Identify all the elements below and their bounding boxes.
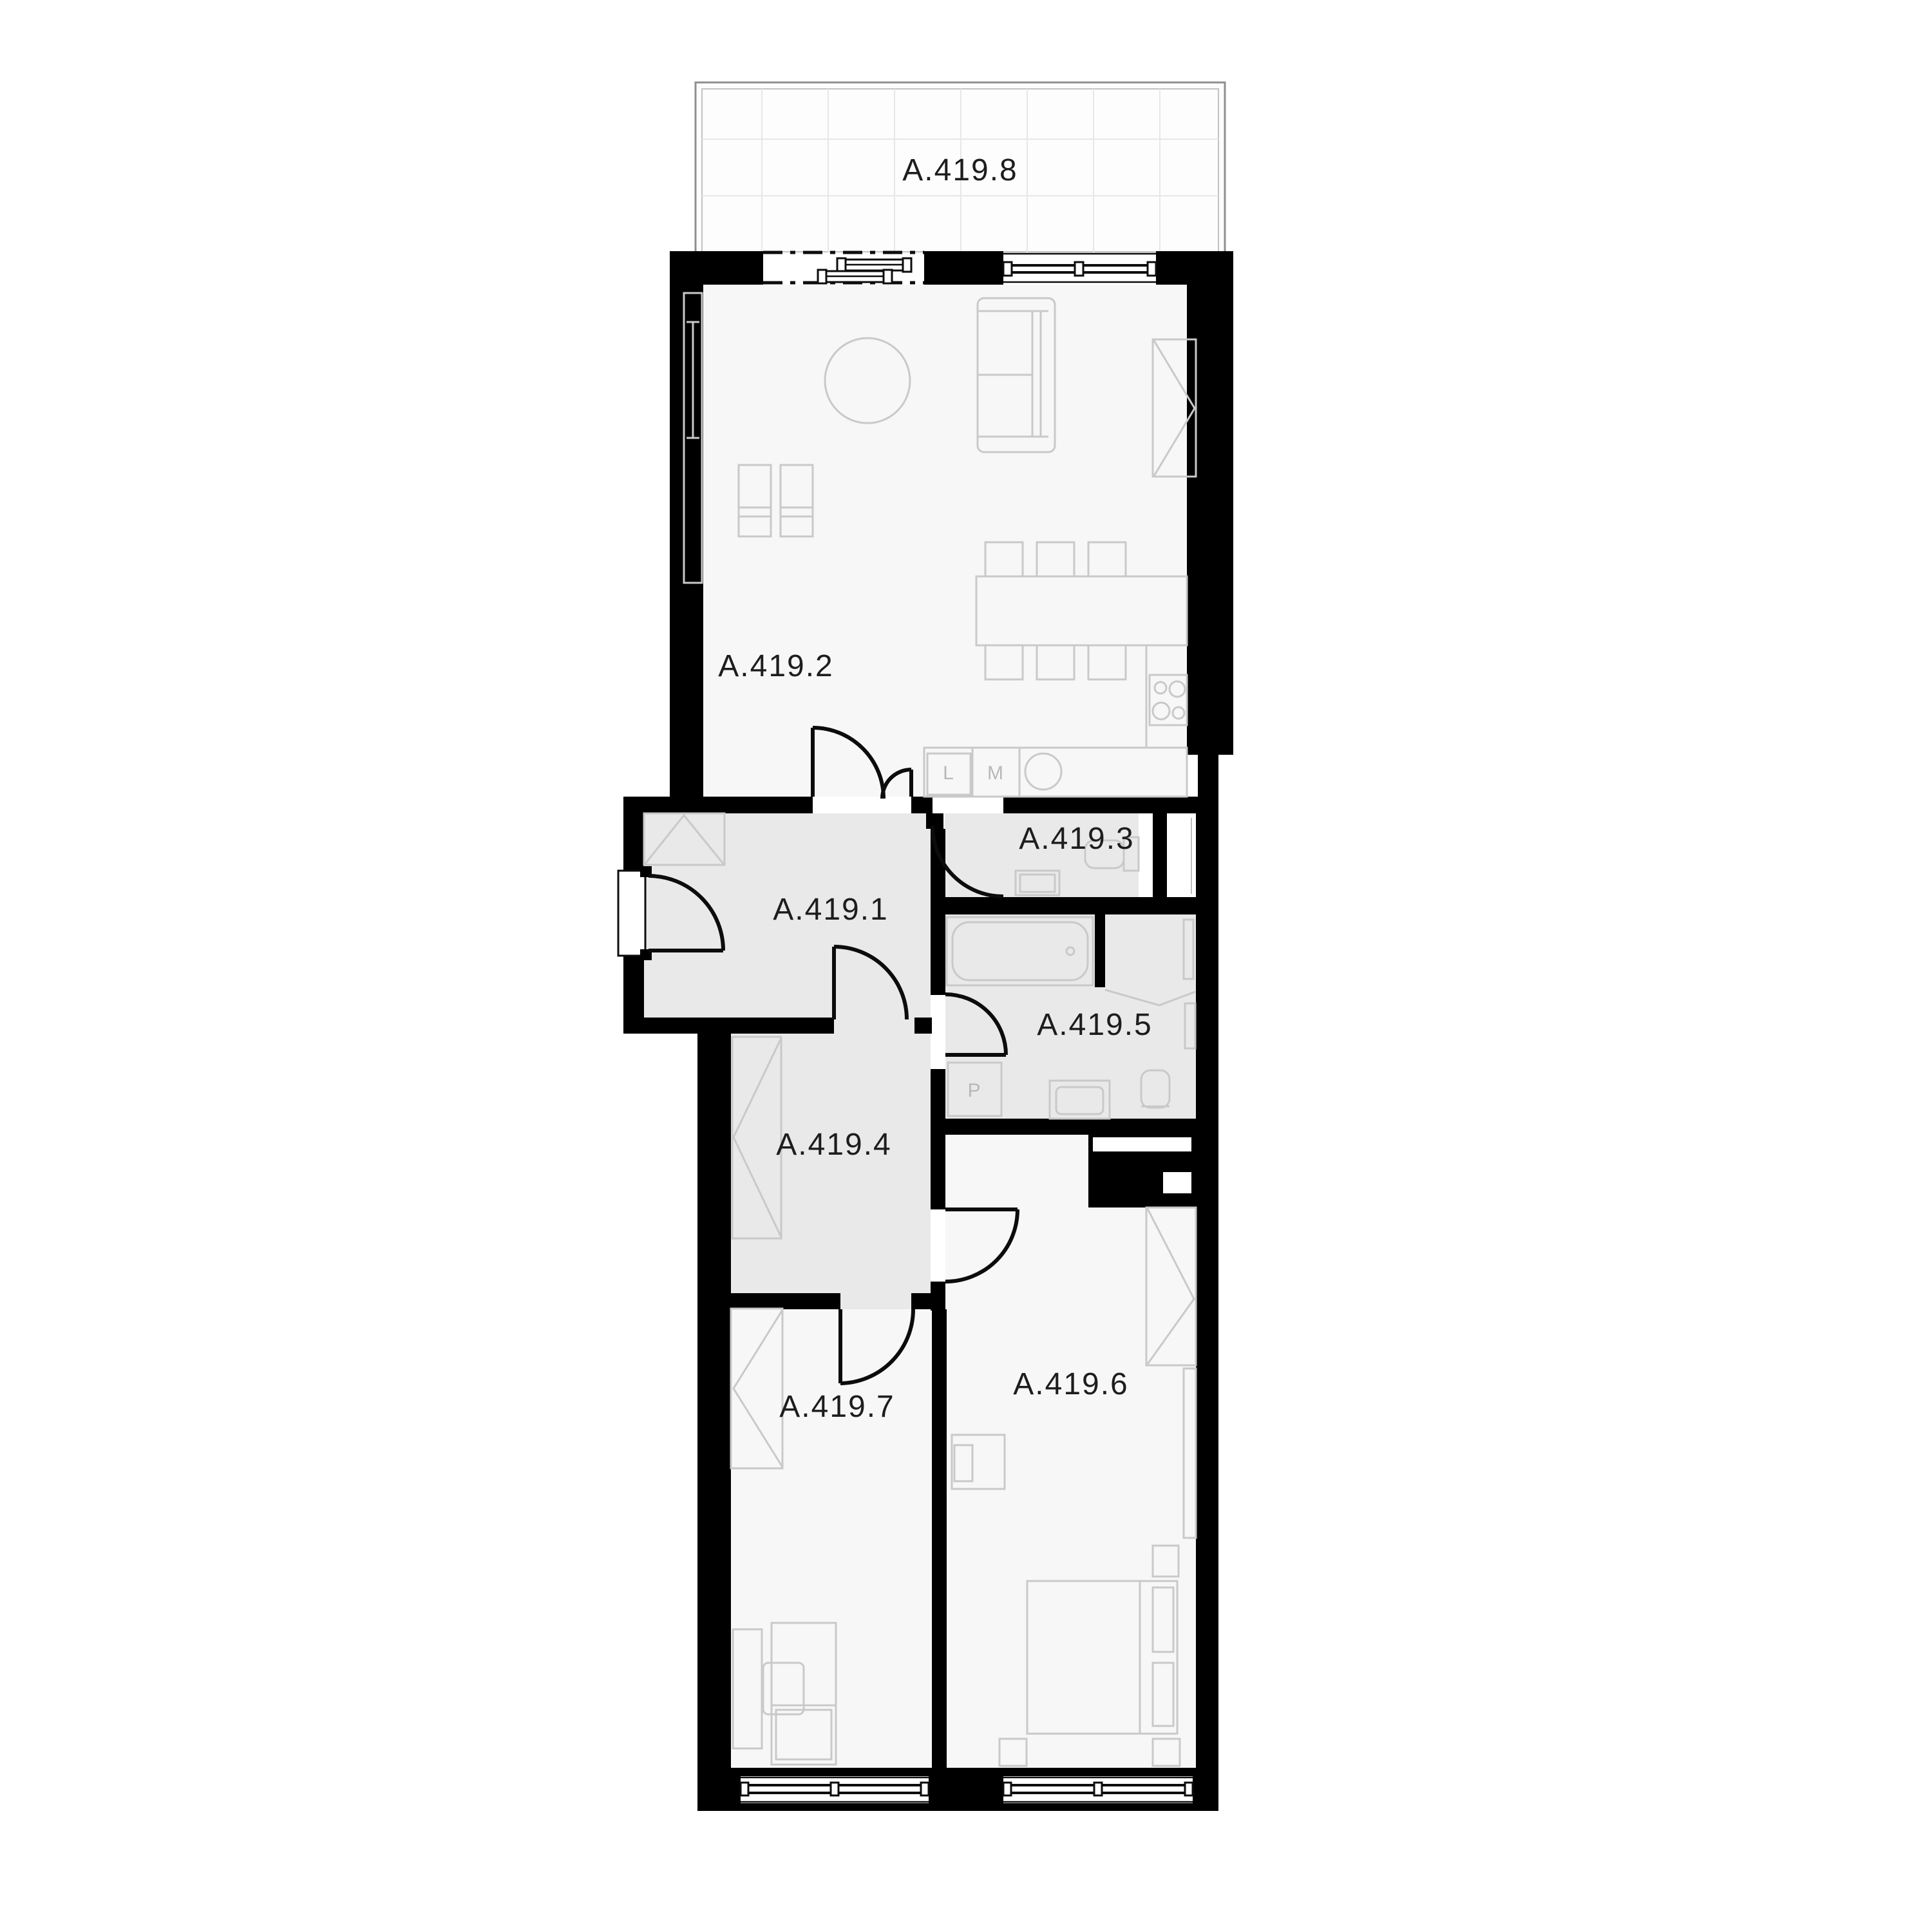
room-label-corridor: A.419.4 [776,1128,891,1162]
floor-corridor [731,1034,931,1309]
floor-bedroom-1 [945,1207,1196,1768]
room-label-bedroom-2: A.419.7 [779,1390,895,1424]
room-label-wc: A.419.3 [1019,822,1134,856]
appliance-label-m: M [987,762,1004,784]
living-room-window [1003,252,1156,283]
bedroom-2-window [741,1776,929,1803]
room-label-bathroom: A.419.5 [1037,1008,1152,1042]
room-label-living-kitchen: A.419.2 [718,649,833,683]
room-label-bedroom-1: A.419.6 [1013,1367,1128,1401]
room-label-hallway: A.419.1 [773,893,888,927]
floor-plan-drawing: A.419.1 A.419.2 A.419.3 A.419.4 A.419.5 … [0,0,1932,1932]
bedroom-1-window [1003,1776,1193,1803]
terrace-sliding-door [763,252,924,283]
floor-plan-canvas: A.419.1 A.419.2 A.419.3 A.419.4 A.419.5 … [0,0,1932,1932]
floor-living-kitchen [703,285,1187,797]
appliance-label-l: L [943,762,954,784]
room-label-terrace: A.419.8 [902,153,1018,187]
appliance-label-p: P [967,1080,981,1101]
